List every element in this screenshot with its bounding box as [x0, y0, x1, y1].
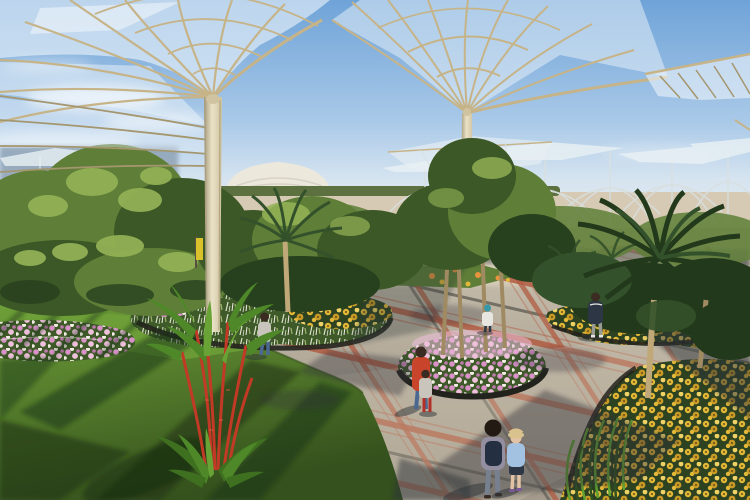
park-render: Sunlit botanical park promenade shaded b…: [0, 0, 750, 500]
